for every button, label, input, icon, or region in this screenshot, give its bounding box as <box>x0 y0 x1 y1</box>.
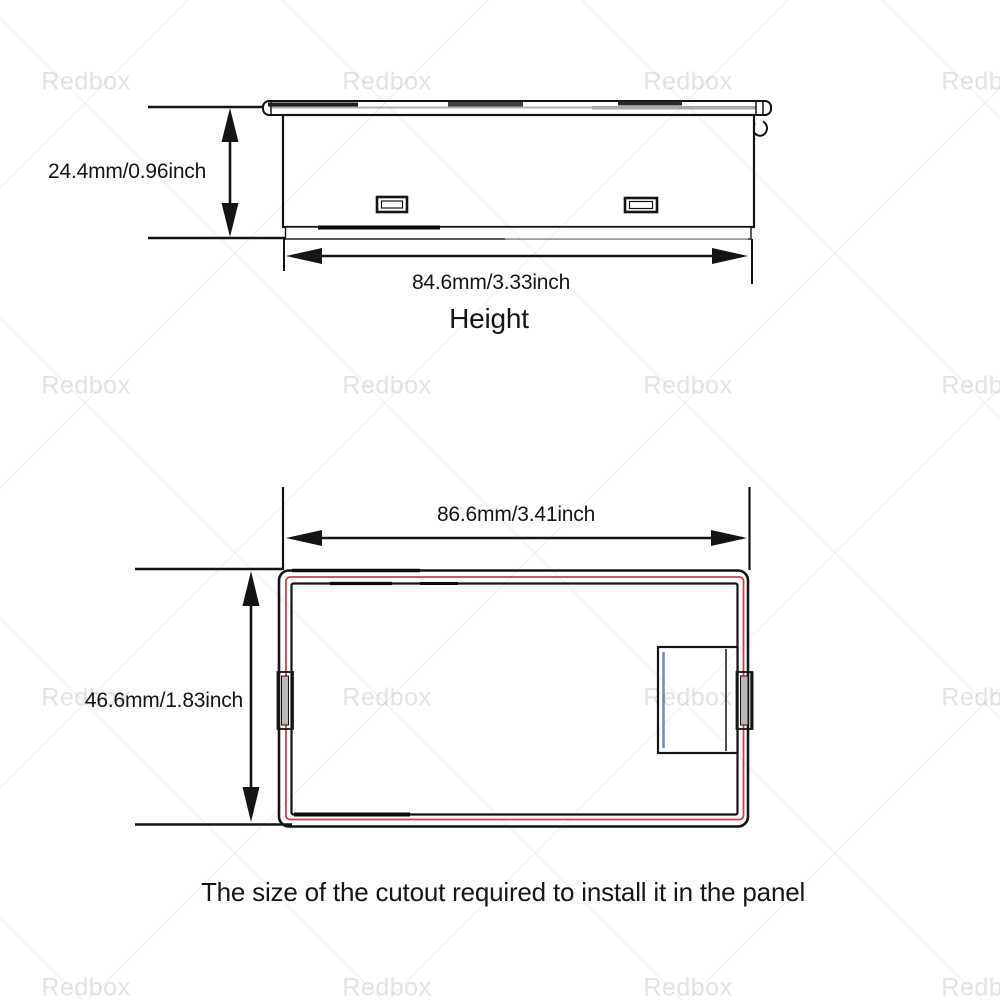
cutout-height-dimension: 46.6mm/1.83inch <box>43 689 243 712</box>
flange-shade-left <box>268 103 358 107</box>
watermark-text: Redbox <box>941 372 1000 401</box>
watermark-text: Redbox <box>941 974 1000 1000</box>
cutout-height-arrow <box>243 571 260 822</box>
watermark-text: Redbox <box>342 684 431 713</box>
watermark-text: Redbox <box>342 974 431 1000</box>
watermark-text: Redbox <box>643 974 732 1000</box>
watermark-text: Redbox <box>342 68 431 97</box>
watermark-text: Redbox <box>643 68 732 97</box>
cutout-width-arrow <box>286 530 747 546</box>
watermark-text: Redbox <box>41 974 130 1000</box>
height-dimension-arrow <box>222 108 239 237</box>
flange-shade-right <box>618 102 682 106</box>
side-view-diagram <box>148 101 771 284</box>
dimension-drawing <box>0 0 1000 1000</box>
watermark-text: Redbox <box>941 684 1000 713</box>
product-dimension-image: Redbox Redbox Redbox Redbox Redbox Redbo… <box>0 0 1000 1000</box>
watermark-text: Redbox <box>342 372 431 401</box>
watermark-text: Redbox <box>643 372 732 401</box>
flange-gray-band <box>592 106 757 110</box>
side-view-height-dimension: 24.4mm/0.96inch <box>48 160 206 183</box>
watermark-text: Redbox <box>41 372 130 401</box>
width-dimension-arrow <box>286 248 748 264</box>
clip-left <box>377 197 407 212</box>
device-body <box>283 115 754 227</box>
clip-right <box>625 198 657 212</box>
side-view-width-dimension: 84.6mm/3.33inch <box>341 271 641 294</box>
watermark-text: Redbox <box>941 68 1000 97</box>
cutout-view-diagram <box>135 487 753 827</box>
cutout-width-dimension: 86.6mm/3.41inch <box>366 503 666 526</box>
side-view-title: Height <box>389 304 589 335</box>
watermark-text: Redbox <box>643 684 732 713</box>
cutout-caption: The size of the cutout required to insta… <box>103 878 903 907</box>
flange-shade-mid <box>448 102 523 107</box>
watermark-text: Redbox <box>41 68 130 97</box>
